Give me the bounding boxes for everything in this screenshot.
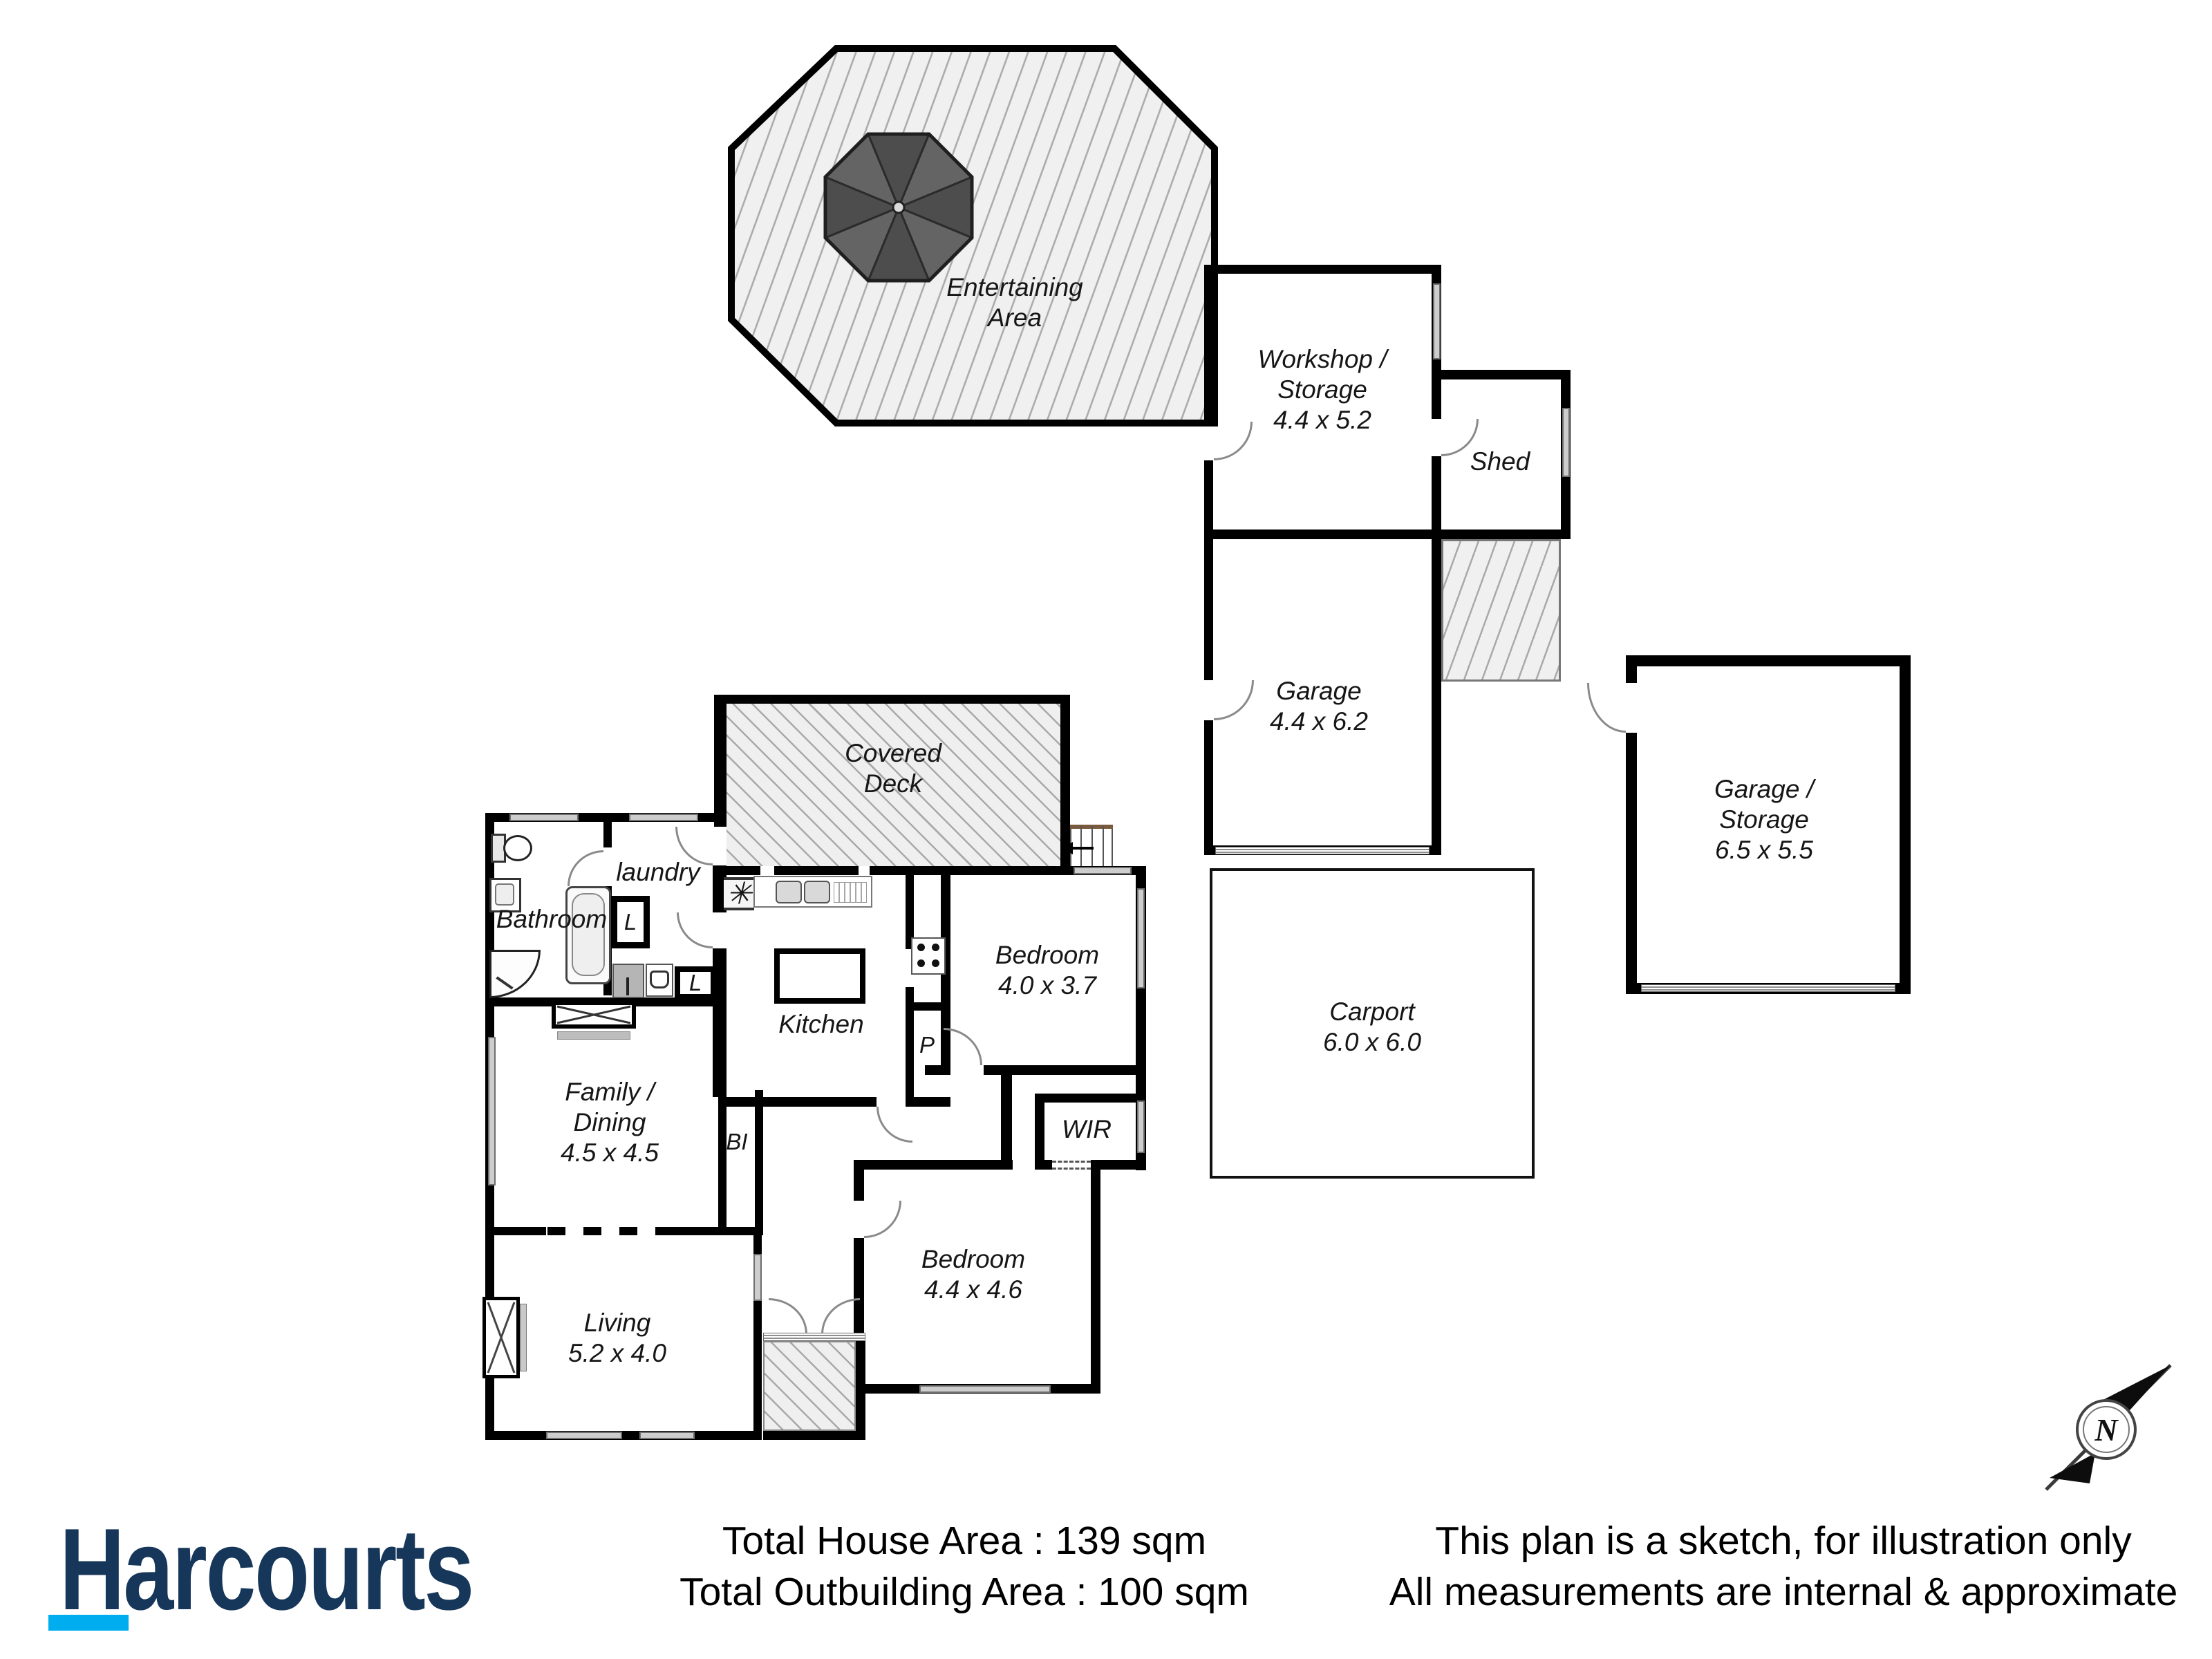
stairs-arrow-stem [1073, 847, 1094, 850]
door-arc-kitchen [877, 1107, 912, 1143]
family-dining-label: Family / [565, 1078, 655, 1107]
window [1137, 888, 1145, 988]
harcourts-logo-underline [48, 1615, 129, 1631]
wall [1432, 370, 1441, 419]
living-label: Living [584, 1309, 651, 1338]
entertaining-label: Entertaining [946, 273, 1082, 302]
window [1433, 283, 1441, 359]
wall [714, 695, 1070, 704]
wall [906, 866, 914, 949]
window [488, 1037, 496, 1185]
stove-burner-icon [932, 959, 939, 967]
carport-label: Carport [1329, 997, 1414, 1027]
window [639, 1432, 695, 1439]
bedroom-rear-label: Bedroom [921, 1245, 1025, 1274]
stairs-direction-arrow-icon [1062, 842, 1073, 854]
fireplace-cross [556, 1005, 632, 1024]
built-in-label: BI [726, 1129, 747, 1155]
floor-plan: Entertaining Area Workshop / Storage 4.4… [0, 0, 2212, 1659]
garage-storage-label-2: Storage [1719, 805, 1809, 834]
workshop-dimensions: 4.4 x 5.2 [1273, 406, 1371, 435]
wall [714, 695, 727, 827]
linen-label-1: L [624, 909, 637, 935]
wall [1001, 1070, 1012, 1160]
wall [1035, 1160, 1052, 1170]
stair-tread [1103, 826, 1104, 872]
bedroom-rear-dimensions: 4.4 x 4.6 [924, 1275, 1022, 1304]
rear-patio [763, 1341, 856, 1431]
bathroom-label: Bathroom [496, 905, 607, 934]
workshop-label-2: Storage [1277, 375, 1367, 404]
entertaining-label-2: Area [988, 303, 1042, 332]
wall [722, 1097, 877, 1107]
door-arc-bathroom [568, 850, 603, 886]
basin-bowl-icon [495, 883, 514, 906]
door-arc-french-left [769, 1298, 807, 1334]
wall [856, 1338, 865, 1439]
stove-burner-icon [932, 944, 939, 951]
window-gap [760, 866, 774, 875]
window [629, 814, 698, 821]
drainer-icon [834, 882, 867, 903]
wall [1204, 460, 1213, 539]
wall [925, 1065, 944, 1075]
door-arc-garage [1214, 680, 1254, 720]
wall [1432, 370, 1571, 379]
window-box-cross [487, 1301, 516, 1374]
carport-dimensions: 6.0 x 6.0 [1323, 1028, 1421, 1057]
laundry-label: laundry [616, 858, 700, 887]
kitchen-label: Kitchen [778, 1010, 863, 1039]
laundry-tap-icon [626, 977, 629, 995]
hatched-slab [1441, 539, 1561, 682]
dashed-opening [547, 1227, 664, 1235]
garage-storage-label: Garage / [1714, 775, 1814, 804]
compass-north-label: N [2094, 1412, 2119, 1447]
wall [1432, 539, 1441, 855]
wall [1432, 456, 1441, 539]
window [509, 814, 579, 821]
sliding-door-wir [1052, 1161, 1091, 1170]
garage-dimensions: 4.4 x 6.2 [1270, 707, 1368, 736]
toilet-bowl-icon [503, 835, 532, 861]
window-gap [859, 866, 870, 875]
wall [854, 1160, 1013, 1170]
wall [664, 1227, 763, 1235]
kitchen-island [774, 948, 865, 1004]
shower-icon [489, 950, 541, 998]
linen-label-2: L [689, 970, 702, 996]
total-outbuilding-area: Total Outbuilding Area : 100 sqm [643, 1566, 1286, 1618]
door-arc-bedroom-rear [864, 1201, 901, 1238]
wall [1204, 720, 1213, 855]
wall [718, 1007, 727, 1235]
total-house-area: Total House Area : 139 sqm [643, 1515, 1286, 1566]
wall [1626, 655, 1637, 683]
wir-label: WIR [1062, 1115, 1112, 1144]
wall [1204, 265, 1213, 422]
wall [755, 1090, 763, 1235]
wall [485, 1431, 762, 1440]
wall [1204, 265, 1441, 274]
wall [1900, 655, 1911, 994]
window-strip [520, 1304, 527, 1371]
garage-door [1215, 847, 1430, 854]
kitchen-sink-icon [776, 881, 802, 903]
door-arc-french-right [821, 1298, 860, 1334]
stove-burner-icon [917, 944, 925, 951]
hearth [557, 1031, 630, 1040]
family-dining-dimensions: 4.5 x 4.5 [561, 1138, 659, 1168]
living-dimensions: 5.2 x 4.0 [568, 1339, 666, 1368]
door-arc-hall [677, 912, 713, 948]
area-totals: Total House Area : 139 sqm Total Outbuil… [643, 1515, 1286, 1618]
covered-deck-label-2: Deck [864, 769, 922, 798]
wall [1035, 1094, 1136, 1103]
disclaimer: This plan is a sketch, for illustration … [1362, 1515, 2205, 1618]
wall [1204, 539, 1213, 680]
wall [1626, 733, 1637, 994]
wall [1432, 529, 1571, 539]
family-dining-label-2: Dining [574, 1108, 646, 1137]
pantry-label: P [919, 1032, 935, 1058]
kitchen-sink-icon [804, 881, 830, 903]
washing-machine-drum-icon [650, 971, 669, 988]
garage-storage-dimensions: 6.5 x 5.5 [1715, 836, 1813, 865]
bedroom-front-label: Bedroom [995, 941, 1099, 970]
wall [1626, 655, 1911, 666]
wall [1091, 1160, 1100, 1394]
window [919, 1385, 1051, 1393]
window [546, 1432, 622, 1439]
disclaimer-line-2: All measurements are internal & approxim… [1362, 1566, 2205, 1618]
disclaimer-line-1: This plan is a sketch, for illustration … [1362, 1515, 2205, 1566]
garage-door [1641, 984, 1895, 992]
stove-icon [911, 937, 946, 975]
bedroom-front-dimensions: 4.0 x 3.7 [998, 971, 1096, 1000]
garage-label: Garage [1276, 677, 1361, 706]
sliding-door-living [753, 1254, 762, 1301]
wall [763, 1431, 865, 1440]
shed-label: Shed [1470, 447, 1530, 476]
heater-asterisk-icon: ✳ [727, 877, 752, 912]
stove-burner-icon [917, 959, 925, 967]
wall [912, 1097, 950, 1107]
compass-icon: N [2029, 1348, 2188, 1507]
workshop-label: Workshop / [1257, 345, 1387, 374]
window [1074, 867, 1132, 874]
door-arc-workshop [1214, 422, 1253, 460]
window [1137, 1100, 1145, 1153]
door-arc-bedroom-front [944, 1028, 982, 1065]
door-sill [763, 1333, 865, 1341]
wall [603, 813, 612, 847]
wall [854, 1160, 864, 1201]
window [1562, 408, 1570, 477]
door-arc-garage-storage [1587, 683, 1626, 733]
covered-deck-label: Covered [845, 739, 941, 768]
umbrella-icon [816, 124, 982, 290]
wall [1204, 529, 1441, 539]
wall [485, 1227, 546, 1235]
wall [1035, 1094, 1044, 1170]
